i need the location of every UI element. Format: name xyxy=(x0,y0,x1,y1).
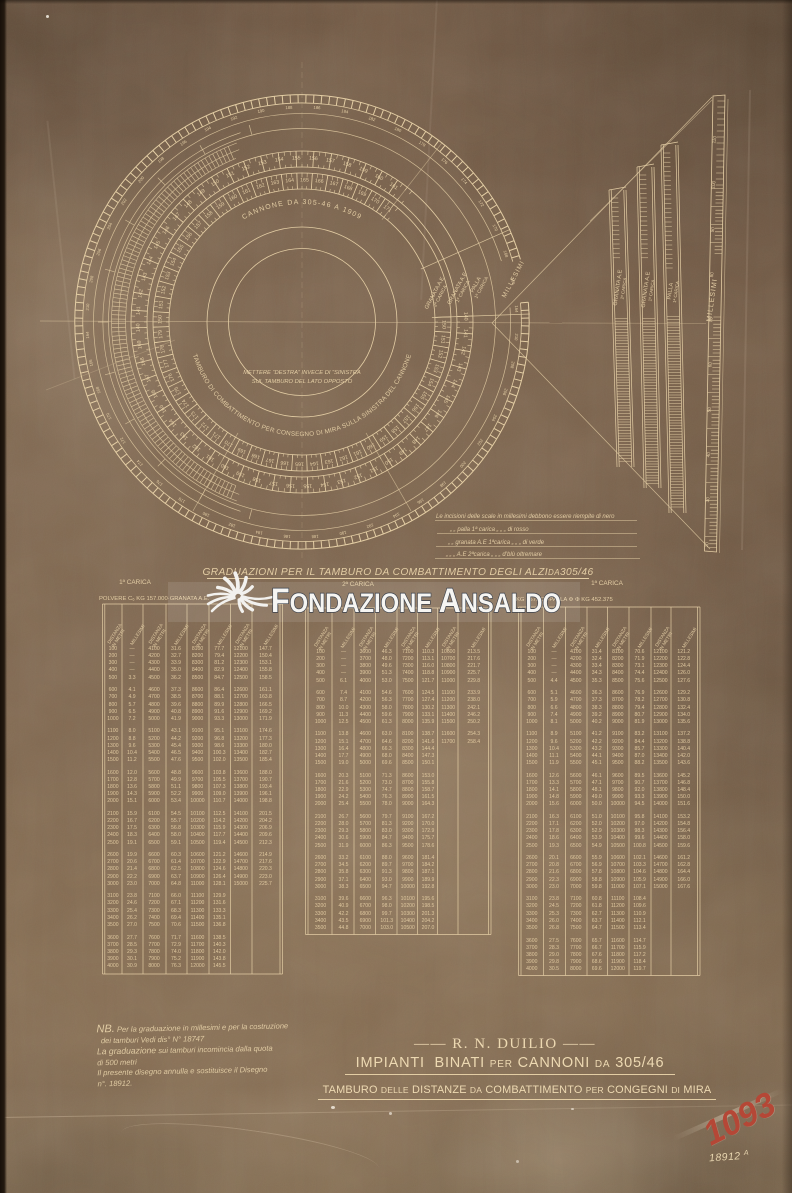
svg-text:FONDAZIONE ANSALDO: FONDAZIONE ANSALDO xyxy=(271,582,561,620)
